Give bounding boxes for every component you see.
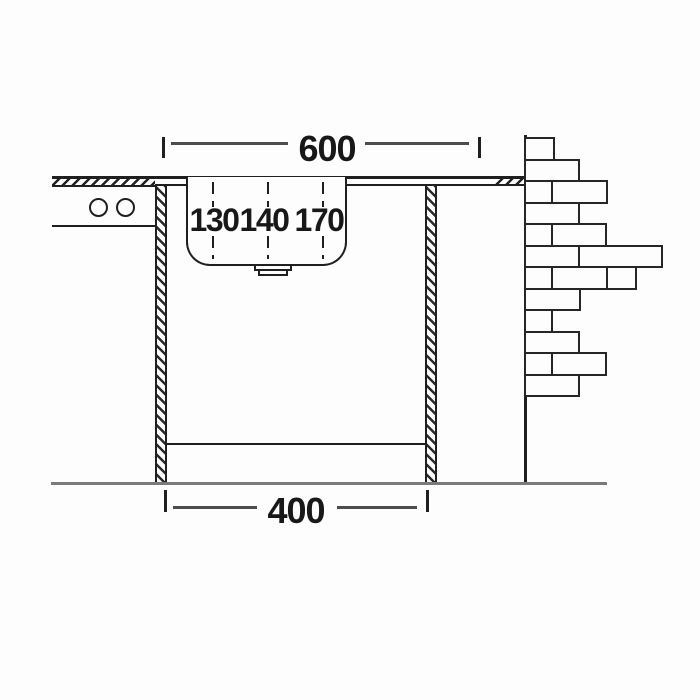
brick [524, 202, 580, 226]
brick [524, 137, 555, 161]
brick [551, 180, 608, 204]
brick [524, 352, 553, 376]
brick [524, 331, 580, 355]
technical-drawing-canvas: 600 130140170 400 [0, 0, 700, 700]
brick [524, 374, 580, 398]
bottom-dimension-line-right [337, 506, 417, 509]
brick [524, 245, 580, 269]
brick [524, 223, 553, 247]
brick [524, 266, 553, 290]
bottom-dimension-tick-right [426, 490, 429, 512]
brick [551, 266, 608, 290]
ground-line [51, 482, 607, 485]
brick [524, 159, 580, 183]
bottom-dimension-line-left [173, 506, 257, 509]
brick [578, 245, 663, 269]
brick-wall-layer [0, 0, 700, 700]
brick [524, 288, 581, 312]
brick [551, 223, 607, 247]
bottom-dimension-label: 400 [256, 496, 336, 526]
brick [551, 352, 607, 376]
brick [524, 309, 553, 333]
brick [606, 266, 637, 290]
brick [524, 180, 553, 204]
bottom-dimension-tick-left [164, 490, 167, 512]
